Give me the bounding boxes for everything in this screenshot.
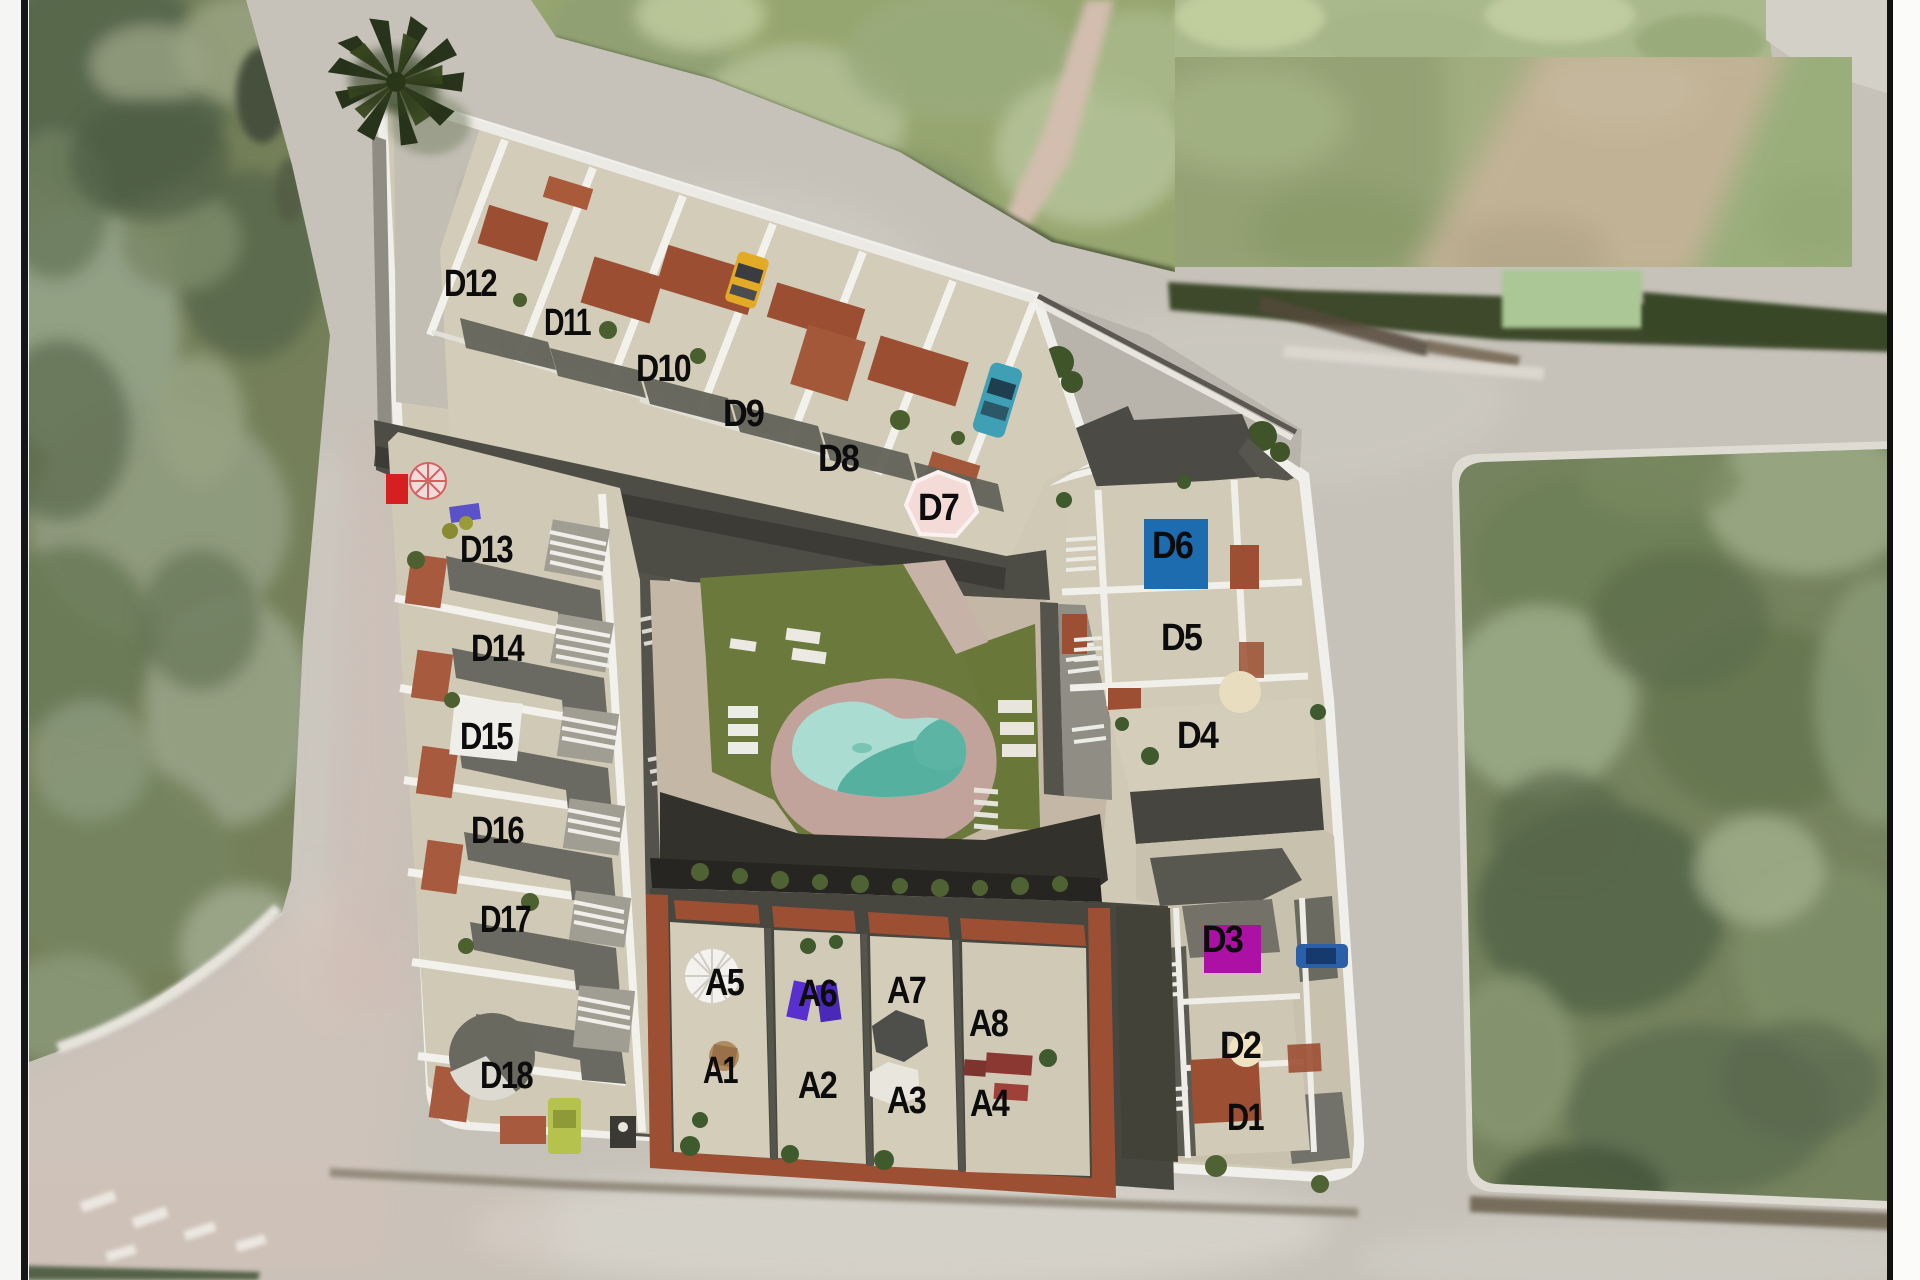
- svg-text:D13: D13: [460, 529, 513, 571]
- svg-text:D3: D3: [1202, 919, 1243, 961]
- svg-text:A2: A2: [798, 1065, 837, 1107]
- svg-text:D12: D12: [444, 263, 497, 305]
- svg-text:D17: D17: [480, 899, 531, 941]
- svg-text:D10: D10: [636, 348, 691, 390]
- svg-text:D14: D14: [471, 628, 525, 670]
- svg-text:D7: D7: [918, 487, 959, 529]
- svg-text:D16: D16: [471, 810, 524, 852]
- svg-text:A4: A4: [970, 1083, 1010, 1125]
- svg-text:D2: D2: [1220, 1025, 1261, 1067]
- svg-text:A6: A6: [798, 973, 837, 1015]
- svg-text:D18: D18: [480, 1055, 533, 1097]
- svg-text:D4: D4: [1177, 715, 1219, 757]
- svg-text:D15: D15: [460, 716, 514, 758]
- svg-text:D8: D8: [818, 438, 859, 480]
- svg-text:D1: D1: [1227, 1097, 1265, 1139]
- svg-text:D11: D11: [544, 302, 591, 344]
- svg-text:A1: A1: [703, 1050, 738, 1092]
- svg-text:A3: A3: [887, 1080, 926, 1122]
- svg-text:D6: D6: [1152, 525, 1193, 567]
- svg-text:A7: A7: [887, 970, 926, 1012]
- svg-text:D5: D5: [1161, 617, 1203, 659]
- svg-text:A8: A8: [969, 1003, 1008, 1045]
- svg-text:A5: A5: [705, 962, 745, 1004]
- svg-text:D9: D9: [723, 393, 764, 435]
